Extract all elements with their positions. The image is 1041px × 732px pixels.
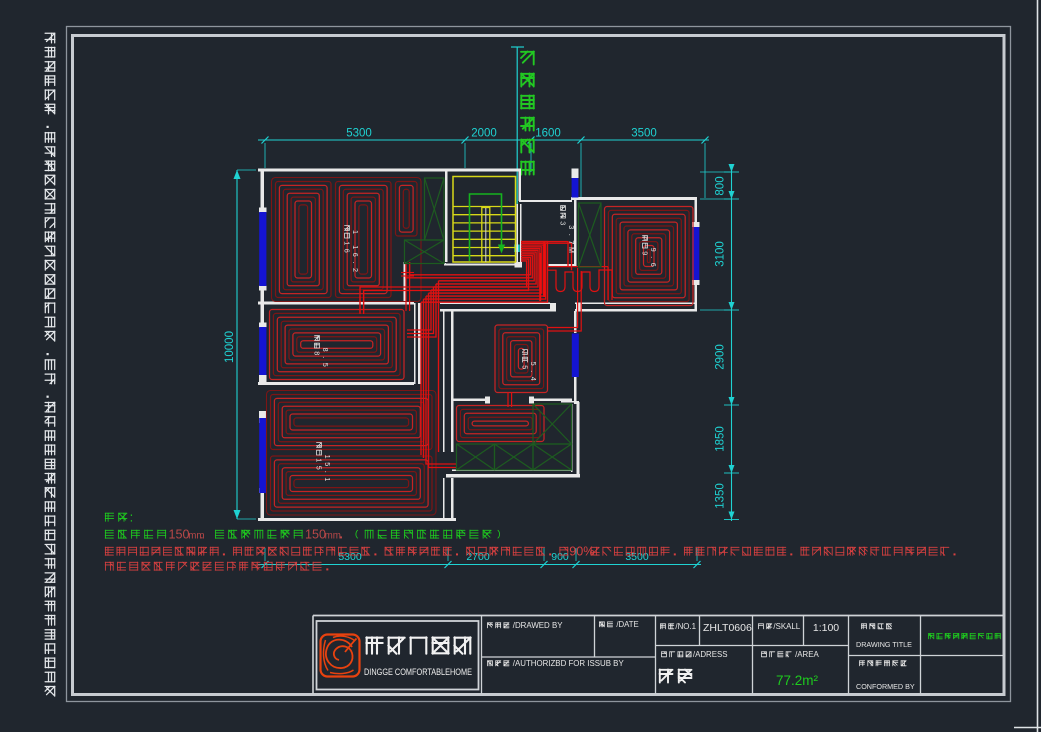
- svg-text:1600: 1600: [535, 128, 561, 140]
- svg-text:/DRAWED BY: /DRAWED BY: [511, 621, 564, 630]
- svg-text:1: 1: [315, 458, 324, 462]
- svg-text:M: M: [567, 247, 576, 253]
- svg-text:5: 5: [521, 365, 530, 369]
- svg-text:.: .: [529, 370, 538, 372]
- svg-text:2900: 2900: [715, 344, 727, 370]
- svg-text:8: 8: [321, 348, 330, 352]
- svg-text:150: 150: [169, 528, 190, 542]
- svg-text:/NO.1: /NO.1: [675, 622, 696, 631]
- svg-text:5300: 5300: [346, 128, 372, 140]
- svg-text:3100: 3100: [715, 241, 727, 267]
- svg-text:9: 9: [641, 251, 650, 255]
- svg-text:1350: 1350: [715, 483, 727, 509]
- svg-text:1: 1: [351, 230, 360, 234]
- svg-text:1: 1: [323, 455, 332, 459]
- svg-text:2000: 2000: [471, 128, 497, 140]
- svg-text:DINGGE COMFORTABLEHOME: DINGGE COMFORTABLEHOME: [364, 667, 472, 677]
- svg-text:3: 3: [559, 221, 568, 225]
- svg-text:.: .: [321, 356, 330, 358]
- svg-text:800: 800: [715, 176, 727, 195]
- svg-text:6: 6: [649, 263, 658, 267]
- svg-text:1:100: 1:100: [813, 622, 839, 634]
- svg-text:5: 5: [529, 362, 538, 366]
- svg-text:90%: 90%: [569, 545, 594, 559]
- svg-text:1: 1: [351, 245, 360, 249]
- svg-text:/AUTHORIZBD FOR ISSUB BY: /AUTHORIZBD FOR ISSUB BY: [511, 659, 625, 668]
- svg-text:8: 8: [313, 351, 322, 355]
- svg-text:6: 6: [343, 249, 352, 253]
- svg-text:/AREA: /AREA: [793, 650, 820, 659]
- svg-text:/DATE: /DATE: [614, 620, 639, 629]
- svg-text:5: 5: [321, 363, 330, 367]
- svg-text:/ADRESS: /ADRESS: [693, 650, 728, 659]
- svg-text:.: .: [323, 471, 332, 473]
- svg-text:6: 6: [351, 253, 360, 257]
- svg-text:.: .: [200, 528, 207, 542]
- svg-text:3: 3: [567, 225, 576, 229]
- svg-text:4: 4: [529, 377, 538, 381]
- svg-text:1: 1: [343, 241, 352, 245]
- svg-text:DRAWING TITLE: DRAWING TITLE: [856, 640, 912, 649]
- svg-text:.: .: [351, 261, 360, 263]
- svg-text:10000: 10000: [224, 331, 236, 363]
- svg-text:/SKALL: /SKALL: [773, 622, 800, 631]
- svg-text:ZHLT0606: ZHLT0606: [703, 622, 752, 634]
- svg-text:mm: mm: [325, 531, 341, 542]
- svg-text:5: 5: [323, 462, 332, 466]
- svg-text:9: 9: [649, 248, 658, 252]
- svg-text:.: .: [649, 256, 658, 258]
- svg-text:1850: 1850: [715, 426, 727, 452]
- svg-text::: :: [130, 510, 134, 525]
- svg-text:7: 7: [567, 240, 576, 244]
- svg-text:2: 2: [351, 268, 360, 272]
- svg-text:77.2m²: 77.2m²: [776, 673, 819, 688]
- svg-text:5: 5: [315, 466, 324, 470]
- svg-text:.: .: [567, 234, 576, 236]
- svg-text:150: 150: [305, 528, 326, 542]
- svg-text:CONFORMED BY: CONFORMED BY: [856, 682, 915, 691]
- svg-text:3500: 3500: [631, 128, 657, 140]
- svg-text:1: 1: [323, 477, 332, 481]
